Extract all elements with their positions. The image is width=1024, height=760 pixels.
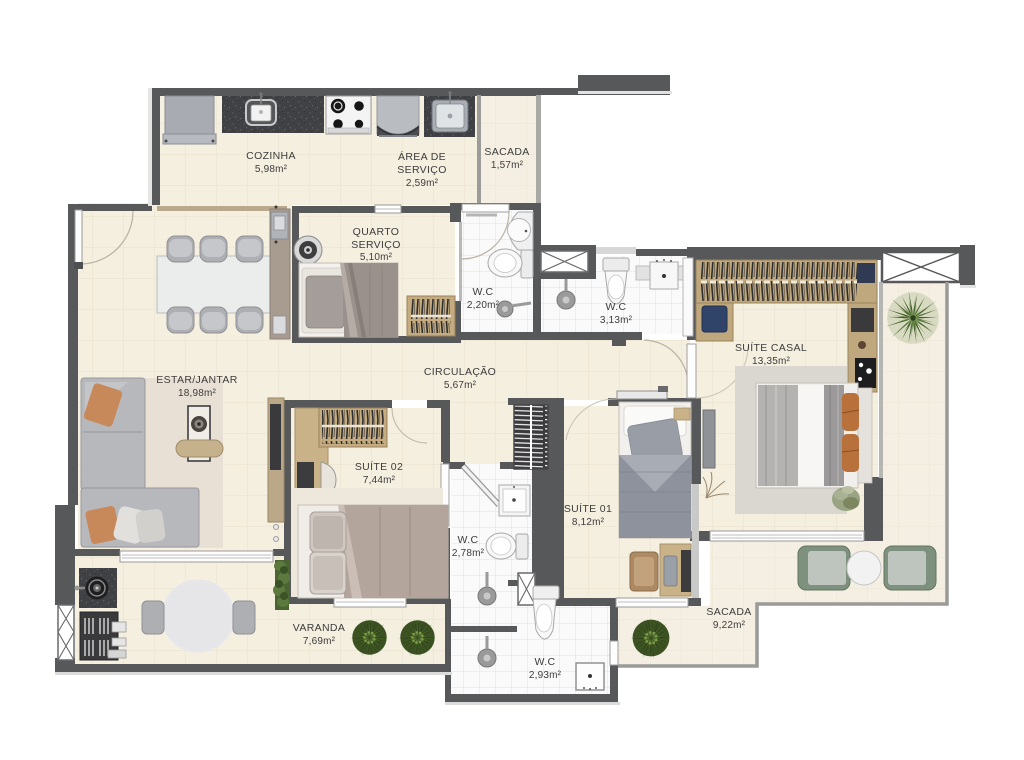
- svg-text:2,59m²: 2,59m²: [406, 178, 439, 189]
- svg-text:COZINHA: COZINHA: [246, 150, 296, 162]
- svg-text:7,44m²: 7,44m²: [363, 475, 396, 486]
- svg-text:SUÍTE 01: SUÍTE 01: [564, 502, 612, 515]
- svg-text:W.C: W.C: [606, 301, 627, 313]
- svg-text:5,10m²: 5,10m²: [360, 252, 393, 263]
- svg-text:SERVIÇO: SERVIÇO: [397, 164, 447, 176]
- svg-text:SACADA: SACADA: [484, 146, 529, 158]
- svg-text:SACADA: SACADA: [706, 606, 751, 618]
- svg-text:W.C: W.C: [535, 656, 556, 668]
- svg-text:W.C: W.C: [473, 286, 494, 298]
- svg-text:ÁREA DE: ÁREA DE: [398, 150, 446, 163]
- svg-text:3,13m²: 3,13m²: [600, 315, 633, 326]
- svg-text:8,12m²: 8,12m²: [572, 517, 605, 528]
- svg-text:2,93m²: 2,93m²: [529, 670, 562, 681]
- svg-text:5,98m²: 5,98m²: [255, 164, 288, 175]
- svg-text:CIRCULAÇÃO: CIRCULAÇÃO: [424, 365, 496, 378]
- svg-text:SUÍTE CASAL: SUÍTE CASAL: [735, 341, 807, 354]
- svg-text:QUARTO: QUARTO: [353, 226, 400, 238]
- svg-text:9,22m²: 9,22m²: [713, 620, 746, 631]
- svg-text:7,69m²: 7,69m²: [303, 636, 336, 647]
- svg-text:13,35m²: 13,35m²: [752, 356, 791, 367]
- svg-text:SUÍTE 02: SUÍTE 02: [355, 460, 403, 473]
- svg-text:1,57m²: 1,57m²: [491, 160, 524, 171]
- svg-text:W.C: W.C: [458, 534, 479, 546]
- svg-text:ESTAR/JANTAR: ESTAR/JANTAR: [156, 374, 237, 386]
- svg-text:2,78m²: 2,78m²: [452, 548, 485, 559]
- svg-text:VARANDA: VARANDA: [293, 622, 345, 634]
- svg-text:SERVIÇO: SERVIÇO: [351, 239, 401, 251]
- svg-text:5,67m²: 5,67m²: [444, 380, 477, 391]
- svg-text:2,20m²: 2,20m²: [467, 300, 500, 311]
- svg-text:18,98m²: 18,98m²: [178, 388, 217, 399]
